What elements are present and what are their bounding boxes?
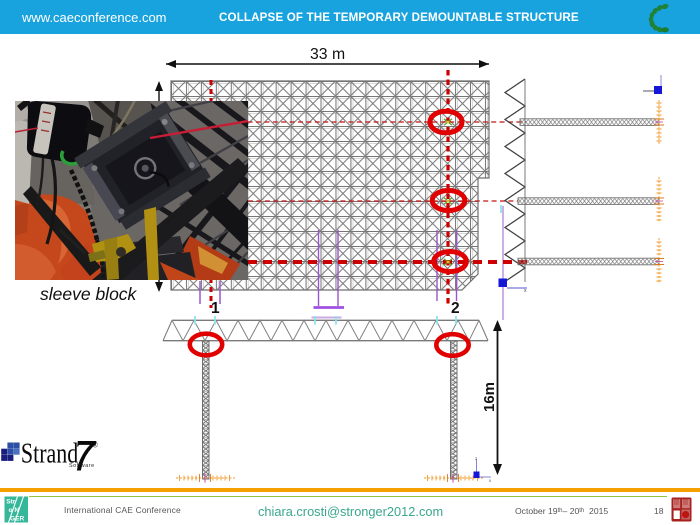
- svg-text:Software: Software: [69, 463, 95, 469]
- svg-text:o N: o N: [9, 507, 20, 514]
- svg-text:2: 2: [451, 300, 460, 317]
- svg-text:Str: Str: [6, 499, 16, 506]
- svg-text:16m: 16m: [481, 382, 498, 412]
- svg-text:33 m: 33 m: [310, 46, 345, 63]
- svg-text:sleeve block: sleeve block: [40, 284, 138, 304]
- svg-text:GER: GER: [10, 516, 25, 523]
- svg-text:z: z: [475, 456, 478, 461]
- svg-text:1: 1: [211, 300, 220, 317]
- svg-text:x: x: [489, 478, 492, 483]
- svg-text:x: x: [524, 288, 527, 294]
